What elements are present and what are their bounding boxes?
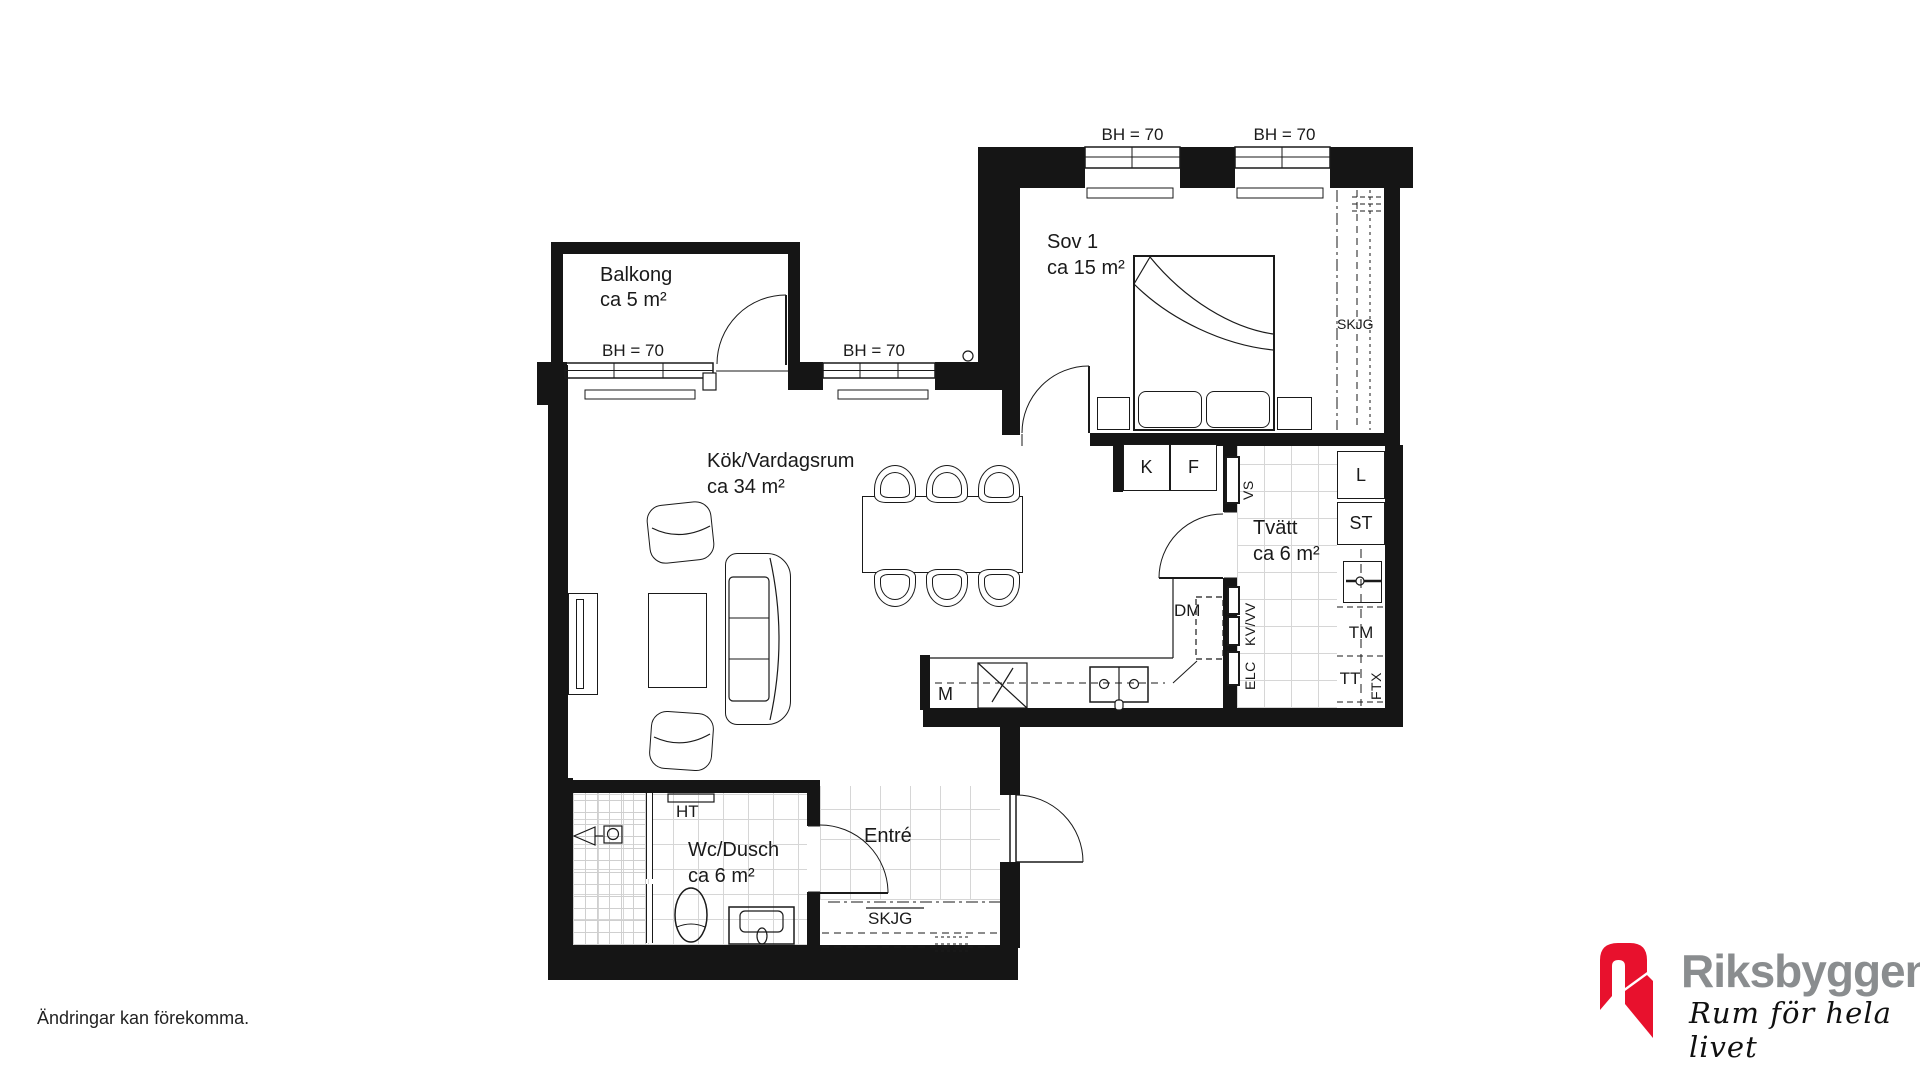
dining-chair-2 <box>926 465 968 503</box>
dishwasher-label: DM <box>1174 600 1200 621</box>
dining-chair-6 <box>978 569 1020 607</box>
dining-chair-seat <box>932 574 962 600</box>
shower-screen-lower <box>646 884 653 943</box>
wardrobe-label-sov1: SKJG <box>1337 316 1374 334</box>
wall-west-wc <box>548 778 573 955</box>
wall-stub-kf <box>1113 443 1123 492</box>
room-area-tvatt: ca 6 m² <box>1253 542 1320 567</box>
dining-chair-seat <box>984 574 1014 600</box>
window-height-sov1-a: BH = 70 <box>1085 124 1180 145</box>
tv-bench-inner <box>576 599 584 689</box>
riksbyggen-logo-mark-icon <box>1590 938 1672 1040</box>
coffee-table <box>648 593 707 688</box>
room-label-sov1: Sov 1 <box>1047 230 1098 255</box>
room-label-entre: Entré <box>864 824 912 849</box>
dining-chair-seat <box>932 472 962 498</box>
wall-west-sov1-thin <box>1002 363 1020 435</box>
room-area-balkong: ca 5 m² <box>600 288 667 313</box>
room-area-wc: ca 6 m² <box>688 864 755 889</box>
dining-chair-1 <box>874 465 916 503</box>
window-height-balkong: BH = 70 <box>602 340 664 361</box>
room-label-wc: Wc/Dusch <box>688 838 779 863</box>
electrical-label: ELC <box>1242 648 1258 690</box>
wall-east-tvatt <box>1385 445 1403 710</box>
wall-west-livingroom <box>548 365 568 783</box>
room-area-kok: ca 34 m² <box>707 475 785 500</box>
freezer-cabinet: F <box>1170 444 1217 491</box>
fridge-label: K <box>1140 457 1152 478</box>
armchair-1 <box>645 500 716 565</box>
nightstand-2 <box>1277 397 1312 430</box>
sov1-window2-opening <box>1235 147 1330 188</box>
balcony-wall-left <box>551 242 563 375</box>
room-label-tvatt: Tvätt <box>1253 516 1297 541</box>
armchair-2 <box>648 710 715 772</box>
dining-chair-5 <box>926 569 968 607</box>
balcony-wall-right <box>788 242 800 365</box>
dining-chair-seat <box>880 574 910 600</box>
wall-east-sov1 <box>1384 185 1400 435</box>
wall-east-entre-upper <box>1000 722 1020 795</box>
wall-north-wc <box>560 780 810 793</box>
pillow-1 <box>1138 391 1202 428</box>
disclaimer-text: Ändringar kan förekomma. <box>37 1008 249 1029</box>
balcony-wall-top <box>551 242 800 254</box>
dining-chair-3 <box>978 465 1020 503</box>
shower-floor-tiles <box>573 793 647 945</box>
shaft-kvvv-2 <box>1227 616 1240 646</box>
dining-chair-seat <box>984 472 1014 498</box>
linen-cabinet: L <box>1337 451 1385 499</box>
room-label-kok: Kök/Vardagsrum <box>707 449 854 474</box>
dining-table <box>862 496 1023 573</box>
sofa <box>725 553 791 725</box>
shaft-vs <box>1225 456 1240 504</box>
linen-cabinet-label: L <box>1356 465 1366 486</box>
wall-east-wc-lower <box>807 892 820 952</box>
window-height-sov1-b: BH = 70 <box>1237 124 1332 145</box>
wall-east-wc-upper <box>807 780 820 826</box>
nightstand-1 <box>1097 397 1130 430</box>
room-area-sov1: ca 15 m² <box>1047 256 1125 281</box>
pillow-2 <box>1206 391 1270 428</box>
riksbyggen-tagline-text: Rum för hela livet <box>1689 996 1905 1064</box>
wardrobe-label-entre: SKJG <box>868 908 912 929</box>
wall-south-kitchen <box>923 708 1403 727</box>
water-shaft-label: VS <box>1240 456 1256 500</box>
room-label-balkong: Balkong <box>600 263 672 288</box>
dining-chair-4 <box>874 569 916 607</box>
riksbyggen-brand-text: Riksbyggen <box>1681 944 1920 998</box>
wall-west-sov1-thick <box>978 147 1020 365</box>
fridge-cabinet: K <box>1123 444 1170 491</box>
laundry-sink <box>1343 561 1382 603</box>
wall-pier-balcony-door <box>788 362 823 390</box>
dining-chair-seat <box>880 472 910 498</box>
towel-rail-label: HT <box>676 801 699 822</box>
dryer-label: TT <box>1333 662 1367 696</box>
riksbyggen-logo: Riksbyggen Rum för hela livet <box>1585 936 1905 1046</box>
window-height-livingroom: BH = 70 <box>843 340 905 361</box>
washing-machine-label: TM <box>1337 615 1385 651</box>
wall-east-entre-lower <box>1000 862 1020 948</box>
wall-south-apartment <box>548 945 1018 980</box>
micro-label: M <box>938 683 953 706</box>
cleaning-cabinet: ST <box>1337 502 1385 545</box>
ventilation-label: FTX <box>1368 652 1384 700</box>
wall-stub-counter <box>920 655 930 710</box>
cleaning-cabinet-label: ST <box>1349 513 1372 534</box>
floorplan-canvas: K F L ST <box>0 0 1920 1080</box>
freezer-label: F <box>1188 457 1199 478</box>
shaft-kvvv-1 <box>1227 586 1240 615</box>
sov1-window1-opening <box>1085 147 1180 188</box>
water-pipes-label: KV/VV <box>1242 584 1258 646</box>
shaft-elc <box>1227 651 1240 686</box>
wall-north-sov1 <box>985 147 1413 188</box>
shower-screen-upper <box>646 793 653 879</box>
